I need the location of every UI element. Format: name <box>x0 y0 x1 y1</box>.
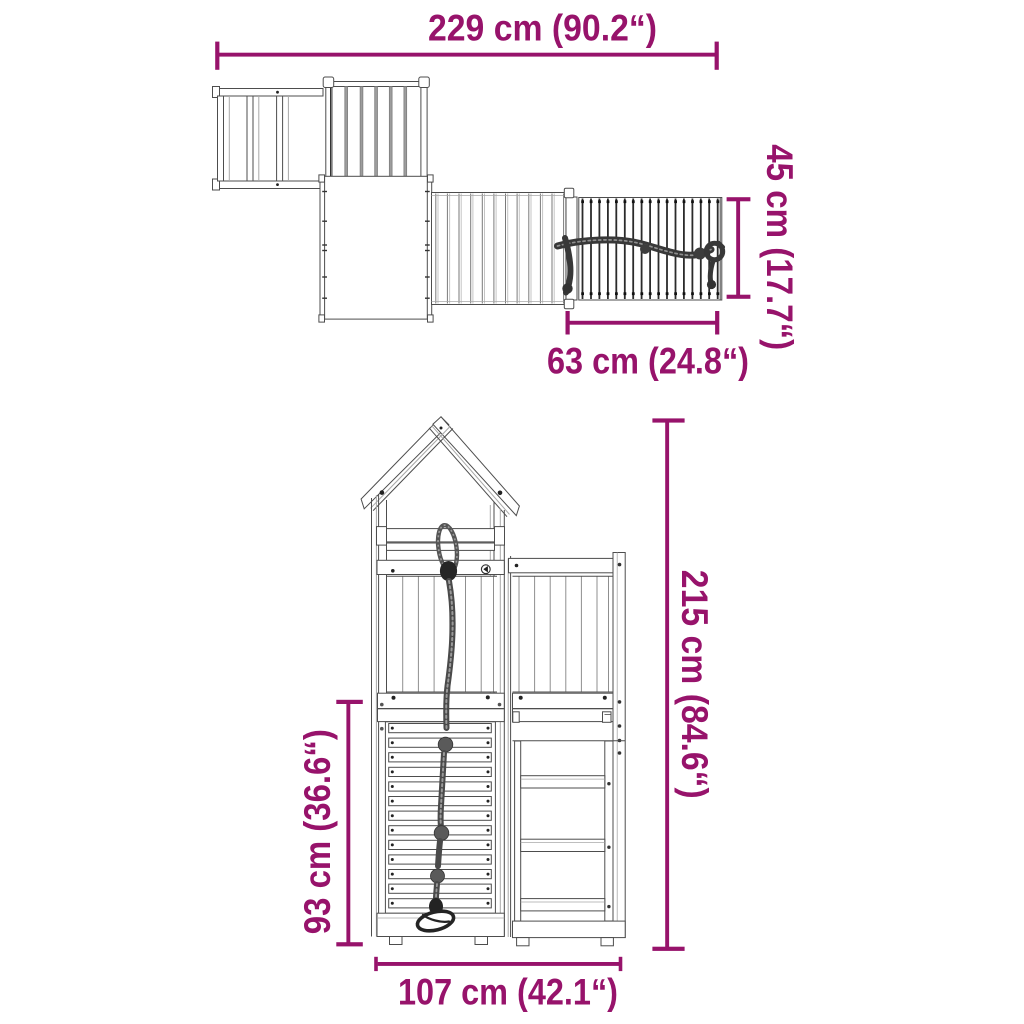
svg-text:45 cm (17.7“): 45 cm (17.7“) <box>759 144 800 350</box>
svg-text:93 cm (36.6“): 93 cm (36.6“) <box>297 729 338 934</box>
svg-text:63 cm (24.8“): 63 cm (24.8“) <box>547 341 749 382</box>
svg-text:215 cm (84.6“): 215 cm (84.6“) <box>674 570 715 799</box>
svg-text:107 cm (42.1“): 107 cm (42.1“) <box>398 972 618 1013</box>
svg-text:229 cm (90.2“): 229 cm (90.2“) <box>428 8 657 49</box>
